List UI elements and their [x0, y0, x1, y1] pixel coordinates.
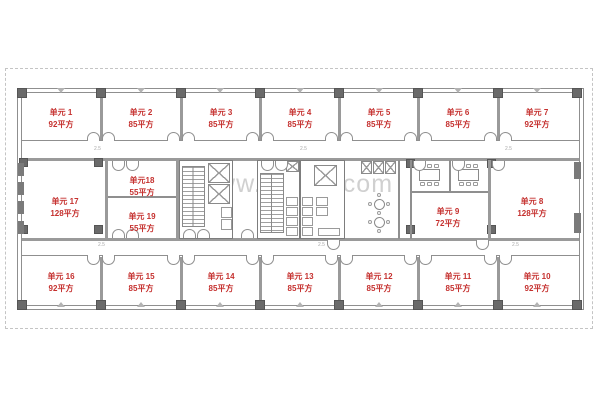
conference-table-icon: [458, 169, 479, 181]
round-table-icon: [374, 217, 385, 228]
window-mark: [57, 88, 65, 93]
column: [413, 300, 423, 310]
wc-stall: [286, 197, 298, 206]
window-mark: [454, 302, 462, 307]
chair-icon: [377, 193, 381, 197]
window-mark: [216, 88, 224, 93]
dimension-mark: 2.5: [512, 243, 519, 248]
door-arc: [167, 132, 180, 141]
chair-icon: [473, 182, 478, 186]
dimension-mark: 2.5: [300, 147, 307, 152]
window-mark: [216, 302, 224, 307]
unit-label-13: 单元 1385平方: [265, 271, 335, 294]
column: [334, 88, 344, 98]
column: [96, 300, 106, 310]
conference-table-icon: [419, 169, 440, 181]
window-mark: [296, 302, 304, 307]
unit-label-16: 单元 1692平方: [26, 271, 96, 294]
chair-icon: [377, 229, 381, 233]
chair-icon: [386, 202, 390, 206]
chair-icon: [377, 211, 381, 215]
floor-plan-sheet: www.01cbd.com: [0, 0, 600, 400]
partition-wall: [410, 160, 412, 239]
column: [572, 88, 582, 98]
partition-wall: [259, 257, 262, 305]
column: [94, 158, 103, 167]
column: [176, 300, 186, 310]
wall-right: [579, 88, 584, 310]
column: [255, 88, 265, 98]
chair-icon: [368, 220, 372, 224]
door-arc: [102, 132, 115, 141]
shaft-icon: [221, 207, 232, 218]
unit-label-11: 单元 1185平方: [423, 271, 493, 294]
sink-counter: [318, 228, 340, 236]
chair-icon: [466, 182, 471, 186]
partition-wall: [497, 257, 500, 305]
unit-label-17: 单元 17128平方: [30, 196, 100, 219]
pantry-unit-icon: [385, 161, 396, 174]
door-arc: [183, 229, 196, 238]
wc-stall: [302, 197, 313, 206]
door-arc: [182, 132, 195, 141]
door-arc: [261, 132, 274, 141]
column: [94, 225, 103, 234]
wc-stall: [316, 207, 328, 216]
wc-stall: [302, 227, 313, 236]
door-arc: [246, 132, 259, 141]
door-arc: [87, 132, 100, 141]
column: [176, 88, 186, 98]
window-mark: [375, 88, 383, 93]
unit-label-2: 单元 285平方: [106, 107, 176, 130]
window-mark: [57, 302, 65, 307]
chair-icon: [420, 182, 425, 186]
partition-wall: [259, 93, 262, 140]
round-table-icon: [374, 199, 385, 210]
window-mark: [296, 88, 304, 93]
chair-icon: [427, 182, 432, 186]
partition-wall: [417, 93, 420, 140]
wc-stall: [286, 227, 298, 236]
unit-label-10: 单元 1092平方: [502, 271, 572, 294]
partition-wall: [338, 257, 341, 305]
wc-stall: [316, 197, 328, 206]
dimension-mark: 2.5: [94, 147, 101, 152]
window-mark: [533, 302, 541, 307]
pantry-unit-icon: [361, 161, 372, 174]
door-arc: [340, 132, 353, 141]
partition-wall: [497, 93, 500, 140]
column: [255, 300, 265, 310]
unit-label-8: 单元 8128平方: [497, 196, 567, 219]
unit-label-6: 单元 685平方: [423, 107, 493, 130]
wc-stall: [286, 207, 298, 216]
door-arc: [404, 132, 417, 141]
window-mark: [454, 88, 462, 93]
column: [493, 88, 503, 98]
unit-label-18: 单元1855平方: [107, 175, 177, 198]
door-arc: [419, 132, 432, 141]
unit-label-1: 单元 192平方: [26, 107, 96, 130]
column: [96, 88, 106, 98]
door-arc: [197, 229, 210, 238]
window-mark: [533, 88, 541, 93]
facade-column: [18, 182, 24, 195]
partition-wall: [180, 257, 183, 305]
door-arc: [325, 132, 338, 141]
facade-column: [574, 213, 581, 233]
facade-column: [18, 163, 24, 176]
partition-wall: [449, 160, 451, 192]
facade-column: [18, 201, 24, 214]
shaft-icon: [314, 165, 337, 186]
door-arc: [241, 229, 254, 238]
shaft-icon: [221, 219, 232, 230]
staircase-icon: [182, 166, 205, 227]
partition-wall: [338, 93, 341, 140]
unit-label-9: 单元 972平方: [413, 206, 483, 229]
unit-label-4: 单元 485平方: [265, 107, 335, 130]
partition-wall: [398, 160, 400, 239]
window-mark: [137, 88, 145, 93]
column: [17, 88, 27, 98]
staircase-icon: [260, 173, 284, 233]
column: [493, 300, 503, 310]
dimension-mark: 2.5: [98, 243, 105, 248]
dimension-mark: 2.5: [505, 147, 512, 152]
column: [17, 300, 27, 310]
window-mark: [137, 302, 145, 307]
unit-label-14: 单元 1485平方: [186, 271, 256, 294]
partition-wall: [180, 93, 183, 140]
dimension-mark: 2.5: [318, 243, 325, 248]
chair-icon: [466, 164, 471, 168]
unit-label-15: 单元 1585平方: [106, 271, 176, 294]
partition-wall: [488, 160, 491, 239]
column: [334, 300, 344, 310]
column: [413, 88, 423, 98]
wc-stall: [286, 217, 298, 226]
window-mark: [375, 302, 383, 307]
partition-wall: [410, 191, 490, 193]
chair-icon: [473, 164, 478, 168]
facade-column: [574, 162, 581, 179]
chair-icon: [386, 220, 390, 224]
unit-label-7: 单元 792平方: [502, 107, 572, 130]
chair-icon: [434, 164, 439, 168]
door-arc: [484, 132, 497, 141]
door-arc: [499, 132, 512, 141]
facade-column: [18, 221, 24, 234]
wall-left: [17, 88, 22, 310]
unit-label-12: 单元 1285平方: [344, 271, 414, 294]
chair-icon: [459, 182, 464, 186]
elevator-icon: [208, 184, 230, 204]
elevator-icon: [208, 163, 230, 183]
chair-icon: [368, 202, 372, 206]
wc-stall: [302, 207, 313, 216]
unit-label-19: 单元 1955平方: [107, 211, 177, 234]
unit-label-3: 单元 385平方: [186, 107, 256, 130]
wc-stall: [302, 217, 313, 226]
partition-wall: [417, 257, 420, 305]
unit-label-5: 单元 585平方: [344, 107, 414, 130]
chair-icon: [427, 164, 432, 168]
pantry-unit-icon: [373, 161, 384, 174]
partition-wall: [100, 93, 103, 140]
column: [572, 300, 582, 310]
partition-wall: [100, 257, 103, 305]
chair-icon: [434, 182, 439, 186]
